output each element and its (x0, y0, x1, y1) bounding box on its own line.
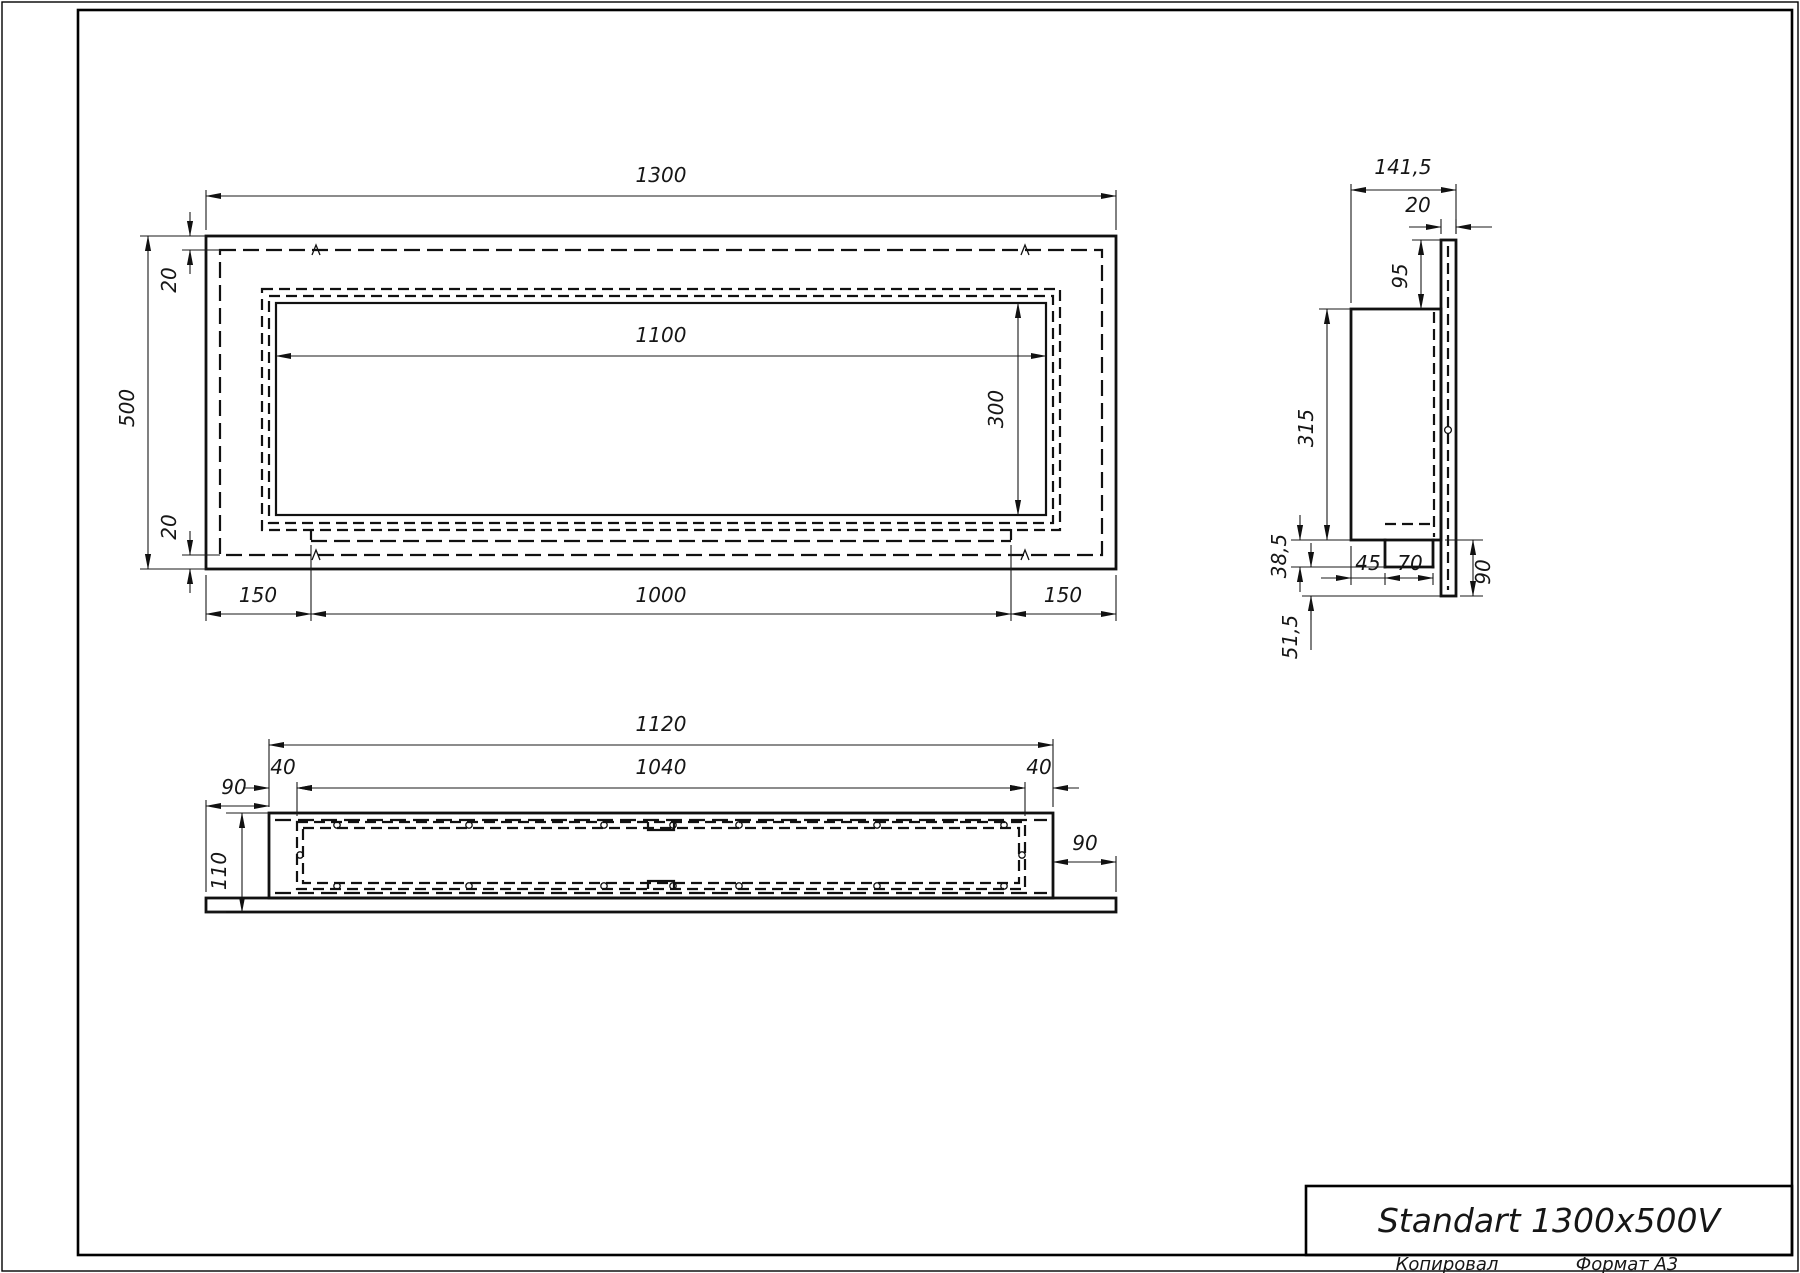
dim-plan-left-margin-label: 40 (270, 755, 295, 779)
dim-plan-depth-label: 110 (207, 852, 231, 890)
dim-step-depth-a-label: 45 (1355, 551, 1380, 575)
sheet-frame (2, 2, 1798, 1271)
dim-opening-height-label: 300 (984, 390, 1008, 428)
dim-opening-height: 300 (984, 303, 1018, 515)
dim-plan-right-margin-label: 40 (1026, 755, 1051, 779)
dim-front-top-margin: 20 (157, 212, 220, 293)
dim-plate-thickness-label: 20 (1405, 193, 1430, 217)
dim-front-width-label: 1300 (636, 163, 687, 187)
dim-slot-length-label: 1000 (636, 583, 687, 607)
dim-front-bottom-margin-label: 20 (157, 514, 181, 539)
dim-side-bottom-inset-label: 51,5 (1278, 615, 1302, 660)
dim-plan-right-overhang: 90 (1053, 831, 1116, 892)
dim-opening-width: 1100 (276, 323, 1046, 356)
dim-plan-opening-width: 1040 40 40 (243, 755, 1079, 816)
dim-front-width: 1300 (206, 163, 1116, 230)
dim-plan-right-overhang-label: 90 (1072, 831, 1097, 855)
dim-plate-drop: 90 (1445, 540, 1495, 596)
dim-body-height: 315 (1294, 309, 1351, 540)
dim-step-depths: 45 70 (1321, 546, 1433, 585)
plan-view: 1120 1040 40 40 90 110 (206, 712, 1116, 912)
dim-side-total-depth-label: 141,5 (1374, 155, 1431, 179)
screw-holes (297, 822, 1025, 889)
clip-mark-icon (312, 245, 1029, 560)
title-block: Standart 1300x500V Копировал Формат А3 (1306, 1186, 1792, 1273)
dim-front-bottom-row: 150 1000 150 (206, 545, 1116, 621)
dim-plate-drop-label: 90 (1471, 559, 1495, 584)
dim-front-height-label: 500 (115, 389, 139, 427)
dim-plan-left-overhang-label: 90 (221, 775, 246, 799)
dim-front-bottom-margin: 20 (157, 514, 220, 593)
dim-front-right-offset-label: 150 (1044, 583, 1082, 607)
dim-plan-opening-width-label: 1040 (636, 755, 687, 779)
dim-plate-thickness: 20 (1405, 193, 1492, 234)
dim-side-top-inset: 95 (1388, 240, 1441, 309)
format-label: Формат А3 (1576, 1254, 1679, 1273)
dim-side-top-inset-label: 95 (1388, 263, 1412, 288)
dim-front-top-margin-label: 20 (157, 267, 181, 292)
drawing-title: Standart 1300x500V (1378, 1201, 1723, 1240)
dim-step-height-label: 38,5 (1267, 534, 1291, 579)
dim-front-left-offset-label: 150 (239, 583, 277, 607)
copied-label: Копировал (1396, 1254, 1499, 1273)
drawing-canvas: 1300 500 20 20 1100 (0, 0, 1800, 1273)
front-view: 1300 500 20 20 1100 (115, 163, 1116, 621)
side-view: 141,5 20 95 315 38,5 (1267, 155, 1495, 659)
dim-body-height-label: 315 (1294, 409, 1318, 447)
drawing-sheet: 1300 500 20 20 1100 (0, 0, 1800, 1273)
dim-step-depth-b-label: 70 (1397, 551, 1422, 575)
dim-opening-width-label: 1100 (636, 323, 687, 347)
dim-plan-body-width-label: 1120 (636, 712, 687, 736)
